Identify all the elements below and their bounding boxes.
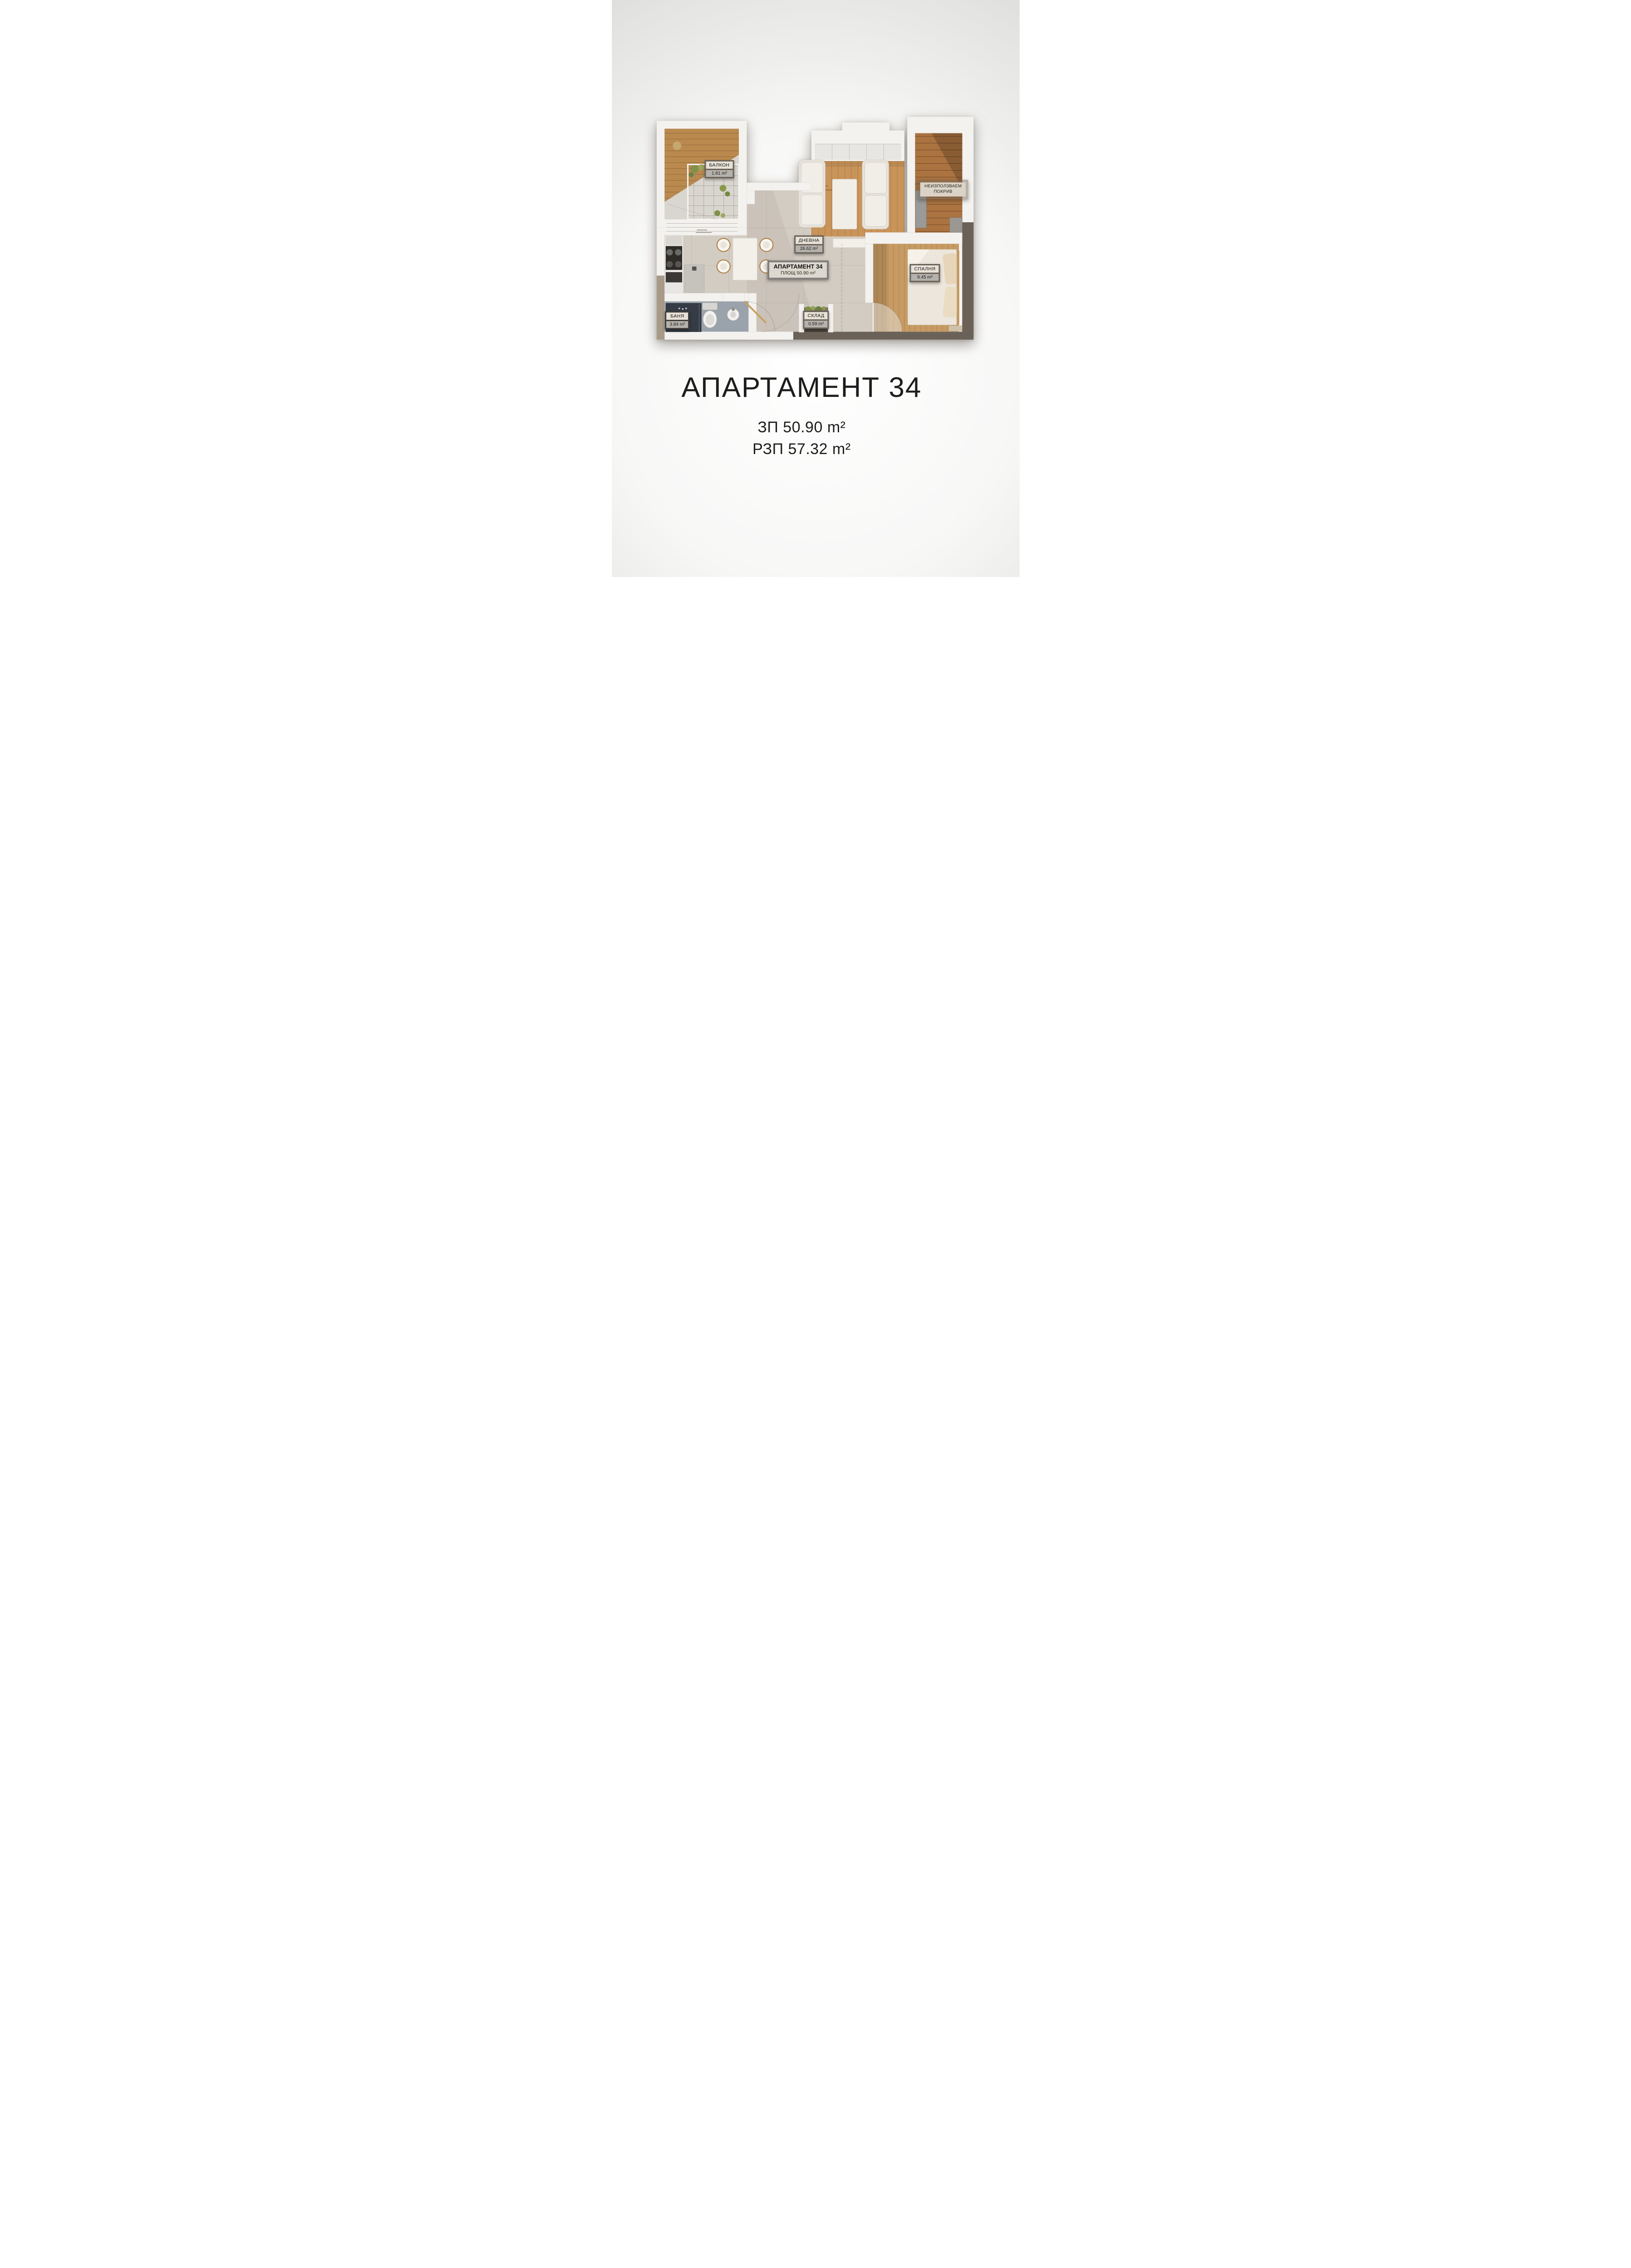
- label-unused-roof: НЕИЗПОЛЗВАЕМ ПОКРИВ: [918, 180, 968, 200]
- toilet: [703, 303, 718, 328]
- label-unused-roof-text: НЕИЗПОЛЗВАЕМ ПОКРИВ: [920, 182, 966, 197]
- sofa-left: [799, 160, 825, 228]
- built-up-area: ЗП 50.90 m²: [643, 420, 960, 435]
- roof-unit-2: [950, 218, 962, 232]
- label-living-room: ДНЕВНА 26.62 m²: [794, 235, 824, 254]
- label-storage: СКЛАД 0.59 m²: [803, 311, 829, 329]
- label-bedroom-name: СПАЛНЯ: [911, 265, 939, 273]
- dining-table: [733, 238, 757, 280]
- label-bathroom-name: БАНЯ: [666, 312, 688, 319]
- apartment-title: АПАРТАМЕНТ 34: [643, 373, 960, 402]
- label-bedroom: СПАЛНЯ 9.45 m²: [910, 264, 940, 282]
- label-apartment-name: АПАРТАМЕНТ 34: [769, 263, 827, 271]
- left-outer-wall: [656, 276, 664, 340]
- label-living-name: ДНЕВНА: [796, 237, 823, 244]
- label-living-area: 26.62 m²: [796, 245, 823, 252]
- label-bedroom-area: 9.45 m²: [911, 274, 939, 281]
- bedroom-door-leaf: [872, 303, 874, 332]
- coffee-table: [832, 179, 857, 229]
- plan-caption: АПАРТАМЕНТ 34 ЗП 50.90 m² РЗП 57.32 m²: [643, 373, 960, 463]
- label-bathroom-area: 3.84 m²: [666, 321, 688, 328]
- label-apartment-area: ПЛОЩ 50.90 m²: [769, 271, 827, 278]
- label-balcony: БАЛКОН 1.81 m²: [704, 160, 734, 178]
- bed: [908, 249, 959, 325]
- page: БАЛКОН 1.81 m² НЕИЗПОЛЗВАЕМ ПОКРИВ ДНЕВН…: [612, 0, 1020, 577]
- bottom-outer-wall: [793, 332, 974, 340]
- label-balcony-area: 1.81 m²: [706, 170, 732, 177]
- label-storage-name: СКЛАД: [805, 312, 828, 319]
- label-storage-area: 0.59 m²: [805, 321, 828, 327]
- sofa-right: [862, 160, 889, 230]
- nightstand: [948, 326, 962, 331]
- label-apartment: АПАРТАМЕНТ 34 ПЛОЩ 50.90 m²: [767, 261, 829, 280]
- oven: [665, 272, 682, 283]
- label-balcony-name: БАЛКОН: [706, 161, 732, 169]
- gross-area: РЗП 57.32 m²: [643, 441, 960, 457]
- right-outer-wall: [962, 222, 973, 340]
- label-bathroom: БАНЯ 3.84 m²: [665, 311, 689, 329]
- living-window: [815, 144, 901, 160]
- balcony-window: [664, 220, 739, 235]
- floor-plan-drawing: [654, 116, 974, 340]
- floor-plan: БАЛКОН 1.81 m² НЕИЗПОЛЗВАЕМ ПОКРИВ ДНЕВН…: [654, 116, 974, 340]
